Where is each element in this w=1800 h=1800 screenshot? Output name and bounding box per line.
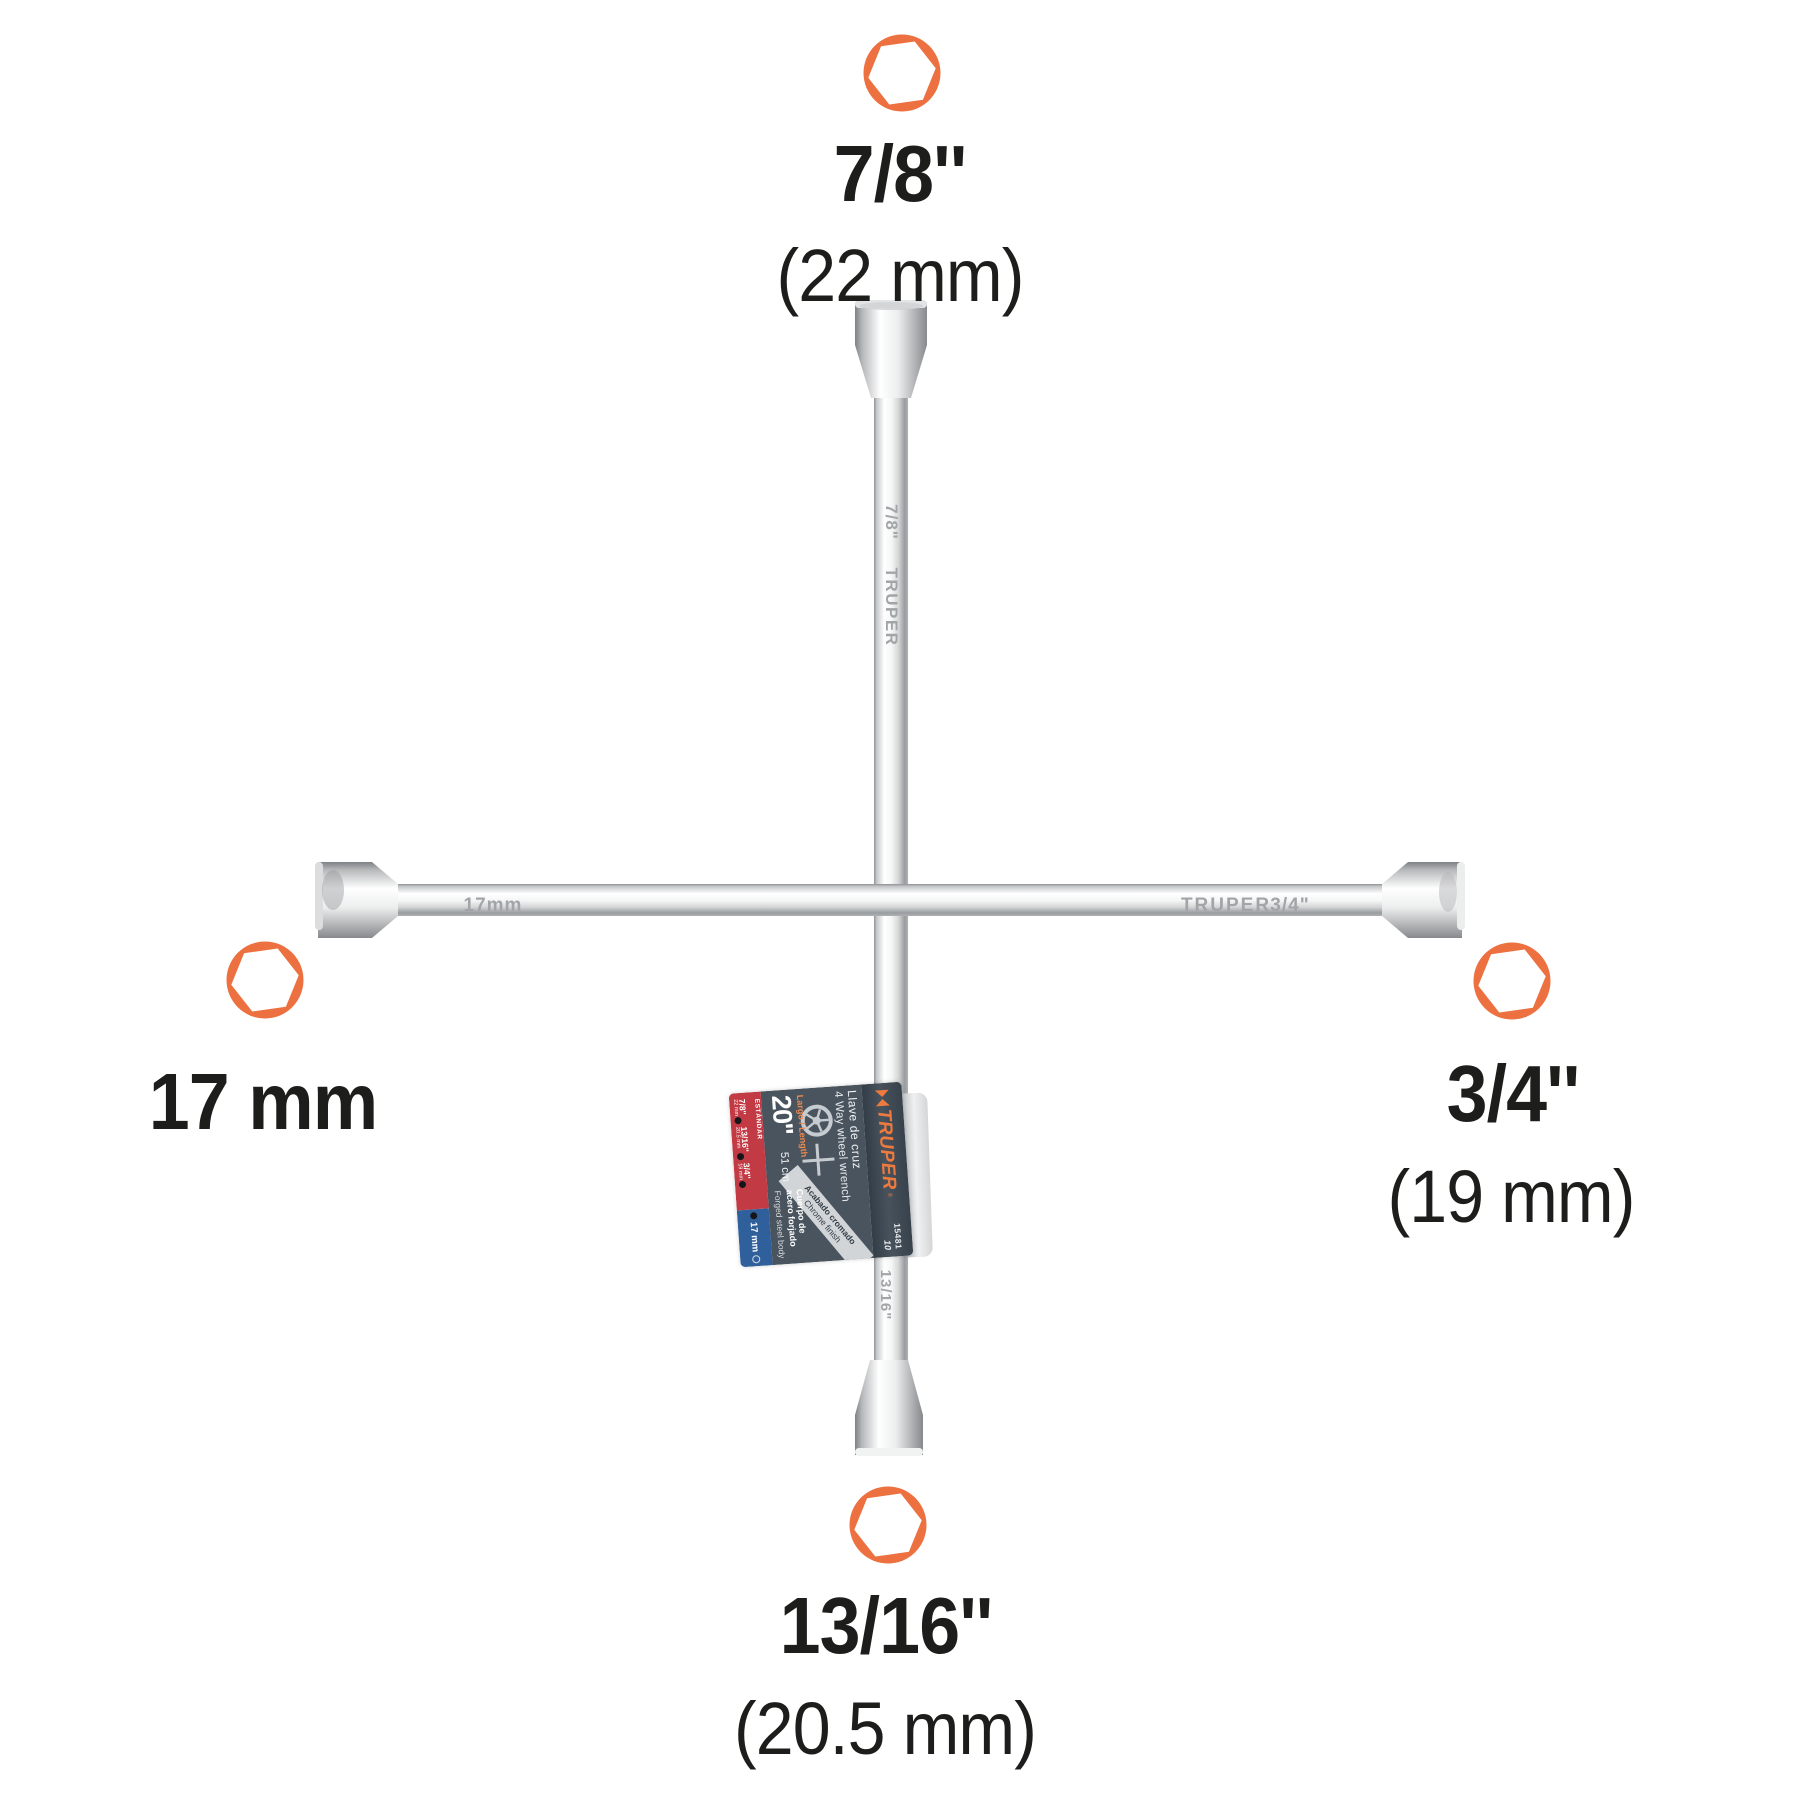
size-label-bottom: 13/16'': [610, 1586, 1162, 1666]
metric-label-top: (22 mm): [624, 239, 1176, 313]
truper-logo: TRUPER ®: [871, 1089, 900, 1198]
metric-label-bottom: (20.5 mm): [609, 1692, 1161, 1766]
standard-size-entry: 7/8'' 22 mm: [732, 1099, 748, 1125]
truper-logo-icon: [875, 1090, 890, 1107]
engraving-right-brand: TRUPER: [1181, 895, 1271, 916]
socket-dot: [734, 1117, 741, 1124]
engraving-right-size: 3/4": [1270, 895, 1309, 916]
size-label-right: 3/4'': [1237, 1054, 1789, 1134]
tag-warranty-badge: 10: [882, 1240, 893, 1251]
socket-dot: [737, 1153, 744, 1160]
truper-brand-text: TRUPER: [872, 1108, 900, 1190]
std-mm-1: 20.5 mm: [734, 1127, 741, 1153]
engraving-left-size: 17mm: [464, 895, 523, 916]
hang-tag: TRUPER ® 15481 10 Llave de cruz 4 Way wh…: [729, 1082, 914, 1268]
hang-tag-body: Llave de cruz 4 Way wheel wrench Acabado…: [761, 1084, 874, 1265]
std-mm-0: 22 mm: [732, 1099, 739, 1116]
standard-size-entry: 13/16'' 20.5 mm: [734, 1126, 750, 1160]
standard-size-entry: 3/4'' 19 mm: [737, 1163, 753, 1189]
registered-mark: ®: [886, 1193, 892, 1198]
metric-label-right: (19 mm): [1235, 1160, 1787, 1234]
standard-label: ESTÁNDAR: [753, 1099, 763, 1140]
socket-dot: [739, 1181, 746, 1188]
tag-punch-hole: [752, 1255, 761, 1264]
size-label-left: 17 mm: [0, 1062, 539, 1142]
wrench-vertical-arm: 7/8" TRUPER 13/16": [855, 300, 927, 1456]
tag-sku: 15481: [891, 1223, 903, 1250]
metric-size-text: 17 mm: [748, 1222, 761, 1253]
engraving-top-size: 7/8": [882, 504, 901, 540]
metric-size-strip: 17 mm: [737, 1208, 773, 1267]
size-label-top: 7/8'': [624, 134, 1176, 214]
length-inches: 20'': [765, 1094, 799, 1135]
engraving-top-brand: TRUPER: [882, 568, 901, 647]
socket-dot: [750, 1212, 757, 1219]
std-mm-2: 19 mm: [737, 1163, 744, 1180]
engraving-bottom-size: 13/16": [877, 1270, 894, 1321]
length-cm: 51 cm: [778, 1152, 792, 1183]
